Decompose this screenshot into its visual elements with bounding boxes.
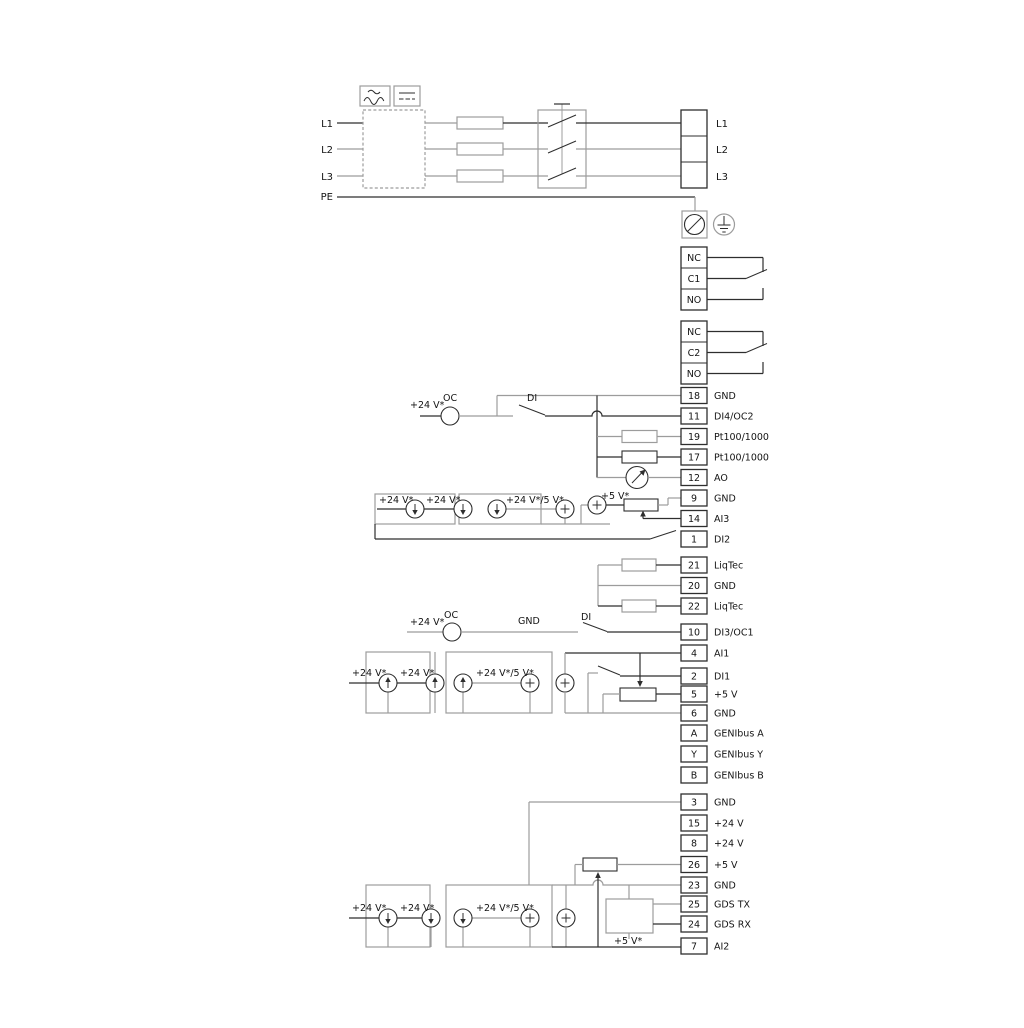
analog-output-circuit xyxy=(597,467,681,489)
terminal-number: 17 xyxy=(688,453,700,464)
plus24v-or-5v-label: +24 V*/5 V* xyxy=(506,495,564,506)
di2-switch xyxy=(650,531,676,540)
plus24v-label: +24 V* xyxy=(410,617,445,628)
oc-label: OC xyxy=(444,610,458,621)
gds-sensor: +5 V* xyxy=(606,885,681,947)
relay1-c1: C1 xyxy=(688,274,701,285)
terminal-number: 25 xyxy=(688,900,700,911)
terminal-group-io3: 3 GND 15 +24 V 8 +24 V 26 +5 V 23 GND 25… xyxy=(681,794,751,954)
terminal-2: 2 DI1 xyxy=(681,668,730,684)
supply-label-l1: L1 xyxy=(716,119,728,130)
terminal-3: 3 GND xyxy=(681,794,736,810)
terminal-15: 15 +24 V xyxy=(681,815,744,831)
terminal-25: 25 GDS TX xyxy=(681,896,751,912)
terminal-26: 26 +5 V xyxy=(681,857,738,873)
terminal-label: +5 V xyxy=(714,860,738,871)
terminal-group-io2: 4 AI1 2 DI1 5 +5 V 6 GND A GENIbus A Y G… xyxy=(681,645,764,783)
potentiometer xyxy=(624,499,658,511)
voltage-source-icon xyxy=(556,674,574,692)
terminal-11: 11 DI4/OC2 xyxy=(681,408,754,424)
terminal-number: 15 xyxy=(688,819,700,830)
supply-label-l3: L3 xyxy=(716,172,728,183)
terminal-14: 14 AI3 xyxy=(681,511,729,527)
terminal-number: B xyxy=(691,771,698,782)
terminal-22: 22 LiqTec xyxy=(681,598,743,614)
terminal-number: 3 xyxy=(691,798,697,809)
terminal-17: 17 Pt100/1000 xyxy=(681,449,769,465)
terminal-Y: Y GENIbus Y xyxy=(681,746,763,762)
terminal-number: 2 xyxy=(691,672,697,683)
plus24v-or-5v-label: +24 V*/5 V* xyxy=(476,668,534,679)
terminal-7: 7 AI2 xyxy=(681,938,729,954)
relay2-c2: C2 xyxy=(688,348,701,359)
fuse-l1 xyxy=(457,117,503,129)
terminal-label: DI2 xyxy=(714,535,730,546)
terminal-label: GND xyxy=(714,494,736,505)
terminal-10: 10 DI3/OC1 xyxy=(681,624,754,640)
terminal-label: AI3 xyxy=(714,514,729,525)
terminal-number: 21 xyxy=(688,561,700,572)
terminal-label: GDS TX xyxy=(714,900,751,911)
plus5v-label: +5 V* xyxy=(614,936,643,947)
gnd-wire-label: GND xyxy=(518,616,540,627)
di-label: DI xyxy=(527,393,537,404)
analog-input-3-circuit: +24 V* +24 V* +24 V*/5 V* +5 V* xyxy=(375,491,681,539)
terminal-label: GND xyxy=(714,581,736,592)
ac-symbol xyxy=(360,86,390,106)
terminal-number: 26 xyxy=(688,860,700,871)
terminal-number: Y xyxy=(690,750,697,761)
relay2-no: NO xyxy=(687,369,702,380)
plus24v-label: +24 V* xyxy=(379,495,414,506)
liqtec-sensor-2 xyxy=(622,600,656,612)
terminal-6: 6 GND xyxy=(681,705,736,721)
current-source-icon xyxy=(454,674,472,692)
terminal-number: 5 xyxy=(691,690,697,701)
fuse-l3 xyxy=(457,170,503,182)
terminal-1: 1 DI2 xyxy=(681,531,730,547)
current-source-icon xyxy=(454,909,472,927)
wiring-diagram: L1 L2 L3 PE L1 L2 L3 xyxy=(0,0,1024,1024)
terminal-label: GND xyxy=(714,881,736,892)
fuse-l2 xyxy=(457,143,503,155)
terminal-19: 19 Pt100/1000 xyxy=(681,429,769,445)
terminal-number: 19 xyxy=(688,432,700,443)
terminal-A: A GENIbus A xyxy=(681,725,764,741)
analog-input-2-circuit: +24 V* +24 V* +24 V*/5 V* +5 V* xyxy=(349,802,681,947)
digital-input-3-circuit: +24 V* OC GND DI xyxy=(407,610,681,641)
wiper-arrow-icon xyxy=(595,872,601,878)
terminal-label: GND xyxy=(714,798,736,809)
terminal-8: 8 +24 V xyxy=(681,835,744,851)
analog-input-1-circuit: +24 V* +24 V* +24 V*/5 V* xyxy=(349,652,681,713)
di3-switch xyxy=(583,623,607,632)
terminal-label: GND xyxy=(714,391,736,402)
terminal-label: Pt100/1000 xyxy=(714,432,769,443)
terminal-number: 12 xyxy=(688,473,700,484)
liqtec-sensor-1 xyxy=(622,559,656,571)
terminal-number: 1 xyxy=(691,535,697,546)
plus24v-label: +24 V* xyxy=(426,495,461,506)
plus24v-label: +24 V* xyxy=(352,903,387,914)
relay2-nc: NC xyxy=(687,327,701,338)
pt100-resistor-2 xyxy=(622,451,657,463)
terminal-number: 10 xyxy=(688,628,700,639)
terminal-label: AI2 xyxy=(714,942,729,953)
input-label-pe: PE xyxy=(321,192,333,203)
pt100-sensor-circuits xyxy=(597,431,681,464)
terminal-group-liqtec: 21 LiqTec 20 GND 22 LiqTec xyxy=(681,557,743,614)
terminal-label: Pt100/1000 xyxy=(714,453,769,464)
terminal-number: 24 xyxy=(688,920,700,931)
pt100-resistor-1 xyxy=(622,431,657,443)
terminal-label: +5 V xyxy=(714,690,738,701)
terminal-number: 22 xyxy=(688,602,700,613)
terminal-number: 8 xyxy=(691,839,697,850)
terminal-label: GENIbus B xyxy=(714,771,764,782)
dc-symbol xyxy=(394,86,420,106)
terminal-label: DI1 xyxy=(714,672,730,683)
terminal-number: 18 xyxy=(688,391,700,402)
terminal-number: 23 xyxy=(688,881,700,892)
input-label-l1: L1 xyxy=(321,119,333,130)
terminal-24: 24 GDS RX xyxy=(681,916,751,932)
terminal-21: 21 LiqTec xyxy=(681,557,743,573)
relay1-no: NO xyxy=(687,295,702,306)
terminal-label: LiqTec xyxy=(714,561,743,572)
terminal-label: +24 V xyxy=(714,819,744,830)
power-input-section: L1 L2 L3 PE L1 L2 L3 xyxy=(321,86,728,211)
voltage-source-icon xyxy=(557,909,575,927)
terminal-number: 20 xyxy=(688,581,700,592)
potentiometer xyxy=(620,688,656,701)
supply-terminal-block: L1 L2 L3 xyxy=(681,110,728,188)
terminal-number: 7 xyxy=(691,942,697,953)
input-label-l2: L2 xyxy=(321,145,333,156)
plus24v-or-5v-label: +24 V*/5 V* xyxy=(476,903,534,914)
terminal-5: 5 +5 V xyxy=(681,686,738,702)
terminal-number: A xyxy=(691,729,698,740)
relay1-nc: NC xyxy=(687,253,701,264)
terminal-B: B GENIbus B xyxy=(681,767,764,783)
di1-switch xyxy=(598,666,620,675)
wiring-diagram-page: L1 L2 L3 PE L1 L2 L3 xyxy=(0,0,1024,1024)
terminal-number: 6 xyxy=(691,709,697,720)
terminal-label: AI1 xyxy=(714,649,729,660)
plus24v-label: +24 V* xyxy=(400,668,435,679)
terminal-label: GDS RX xyxy=(714,920,751,931)
plus24v-label: +24 V* xyxy=(400,903,435,914)
terminal-9: 9 GND xyxy=(681,490,736,506)
terminal-number: 11 xyxy=(688,412,700,423)
terminal-23: 23 GND xyxy=(681,877,736,893)
plus24v-label: +24 V* xyxy=(352,668,387,679)
terminal-label: DI4/OC2 xyxy=(714,412,754,423)
terminal-label: DI3/OC1 xyxy=(714,628,754,639)
relay-1: NC C1 NO xyxy=(681,247,767,310)
terminal-number: 4 xyxy=(691,649,697,660)
pe-terminal xyxy=(682,211,735,238)
terminal-label: AO xyxy=(714,473,728,484)
input-label-l3: L3 xyxy=(321,172,333,183)
terminal-label: GENIbus A xyxy=(714,729,764,740)
plus24v-label: +24 V* xyxy=(410,400,445,411)
liqtec-circuit xyxy=(598,559,681,612)
wiper-arrow-icon xyxy=(637,681,643,687)
terminal-label: +24 V xyxy=(714,839,744,850)
terminal-12: 12 AO xyxy=(681,470,728,486)
potentiometer xyxy=(583,858,617,871)
open-collector-icon xyxy=(443,623,461,641)
terminal-label: LiqTec xyxy=(714,602,743,613)
terminal-4: 4 AI1 xyxy=(681,645,729,661)
earth-ground-icon xyxy=(714,214,735,235)
terminal-label: GND xyxy=(714,709,736,720)
terminal-label: GENIbus Y xyxy=(714,750,763,761)
current-source-icon xyxy=(488,500,506,518)
converter-box xyxy=(363,110,425,188)
terminal-number: 14 xyxy=(688,514,700,525)
terminal-number: 9 xyxy=(691,494,697,505)
oc-label: OC xyxy=(443,393,457,404)
supply-label-l2: L2 xyxy=(716,145,728,156)
relay-2: NC C2 NO xyxy=(681,321,767,384)
terminal-group-io1: 18 GND 11 DI4/OC2 19 Pt100/1000 17 Pt100… xyxy=(681,388,769,548)
di-label: DI xyxy=(581,612,591,623)
terminal-18: 18 GND xyxy=(681,388,736,404)
terminal-20: 20 GND xyxy=(681,578,736,594)
